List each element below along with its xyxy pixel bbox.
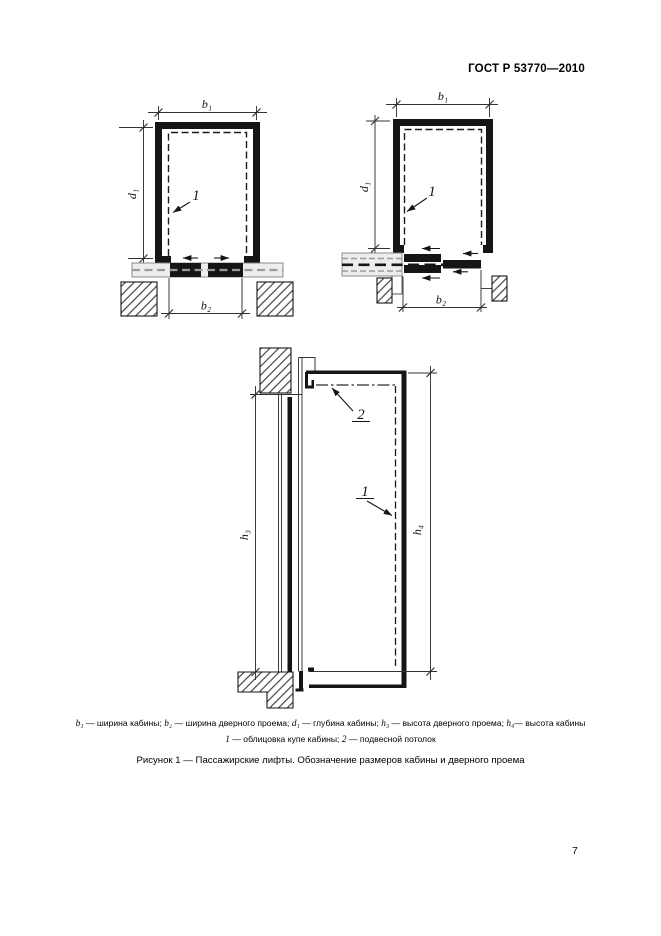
legend-desc: — ширина кабины; bbox=[84, 718, 165, 728]
lintel-hatch-block bbox=[260, 348, 291, 393]
door-panel-rear-top bbox=[404, 254, 441, 262]
cabin-wall-right bbox=[486, 119, 493, 253]
callout-leader bbox=[367, 501, 392, 516]
dimension-h3 bbox=[252, 386, 260, 680]
cabin-wall-left bbox=[393, 119, 400, 245]
cabin-wall-right bbox=[402, 371, 407, 688]
car-lining-dashed bbox=[169, 133, 247, 257]
legend-sym: h₃ bbox=[381, 719, 389, 729]
callout-label-1: 1 bbox=[192, 188, 199, 204]
legend-sym: d₁ bbox=[292, 719, 300, 729]
legend-desc: — облицовка купе кабины; bbox=[230, 734, 342, 744]
legend-desc: — подвесной потолок bbox=[347, 734, 436, 744]
figure-1-drawing: b₁ d₁ 1 bbox=[0, 0, 661, 936]
door-leaf-and-frame bbox=[279, 358, 304, 692]
dim-label-b2: b₂ bbox=[436, 293, 446, 307]
cabin-walls bbox=[393, 119, 493, 253]
door-panel bbox=[288, 397, 293, 672]
callout-leader bbox=[173, 202, 190, 213]
door-panel-front bbox=[443, 260, 481, 269]
figure-caption: Рисунок 1 — Пассажирские лифты. Обозначе… bbox=[0, 755, 661, 766]
legend-desc: — глубина кабины; bbox=[300, 718, 382, 728]
dimension-h4 bbox=[406, 366, 437, 680]
cabin-wall-right bbox=[253, 122, 260, 256]
legend-line-2: 1 — облицовка купе кабины; 2 — подвесной… bbox=[0, 732, 661, 748]
legend-line-1: b₁ — ширина кабины; b₂ — ширина дверного… bbox=[0, 716, 661, 732]
legend-desc: — высота кабины bbox=[514, 718, 585, 728]
door-sill-guide bbox=[299, 671, 303, 691]
shaft-wall-hatch-left bbox=[121, 282, 157, 316]
dim-label-d1: d₁ bbox=[125, 189, 139, 199]
dim-label-b1: b₁ bbox=[202, 97, 212, 111]
dim-label-b1: b₁ bbox=[438, 89, 448, 103]
cabin-walls bbox=[155, 122, 260, 263]
legend-desc: — ширина дверного проема; bbox=[172, 718, 292, 728]
document-page: ГОСТ Р 53770—2010 bbox=[0, 0, 661, 936]
page-number: 7 bbox=[572, 845, 578, 857]
legend-sym: b₁ bbox=[76, 719, 84, 729]
cabin-wall-top bbox=[155, 122, 260, 129]
dim-label-h3: h₃ bbox=[237, 530, 251, 540]
callout-leader bbox=[332, 388, 353, 411]
dim-label-d1: d₁ bbox=[357, 182, 371, 192]
cabin-wall-left bbox=[155, 122, 162, 256]
cabin-wall-left-foot bbox=[393, 245, 404, 253]
cabin-wall-top bbox=[393, 119, 493, 126]
vertical-section-view: h₃ h₄ 2 1 bbox=[237, 348, 437, 708]
threshold-hatch-block bbox=[238, 672, 293, 708]
shaft-wall-hatch-left bbox=[377, 278, 392, 303]
shaft-wall-hatch-right bbox=[257, 282, 293, 316]
legend-desc: — высота дверного проема; bbox=[389, 718, 506, 728]
dim-label-b2: b₂ bbox=[201, 299, 211, 313]
callout-label-2: 2 bbox=[357, 407, 364, 423]
dim-label-h4: h₄ bbox=[410, 525, 424, 535]
callout-label-1: 1 bbox=[428, 184, 435, 200]
cabin-wall-right-foot bbox=[483, 245, 493, 253]
callout-leader bbox=[407, 198, 427, 212]
figure-legend: b₁ — ширина кабины; b₂ — ширина дверного… bbox=[0, 716, 661, 747]
cabin-wall-right-foot bbox=[244, 256, 260, 263]
plan-view-centre-opening-doors: b₁ d₁ 1 bbox=[119, 97, 293, 319]
door-panel-rear-bottom bbox=[404, 265, 441, 273]
cabin-floor bbox=[308, 668, 407, 689]
landing-step-outline bbox=[392, 276, 402, 294]
car-lining-dashed bbox=[405, 130, 482, 246]
cabin-wall-left-foot bbox=[155, 256, 171, 263]
cabin-ceiling bbox=[305, 371, 407, 389]
callout-label-1: 1 bbox=[361, 484, 368, 500]
legend-sym: b₂ bbox=[164, 719, 172, 729]
shaft-wall-hatch-right bbox=[492, 276, 507, 301]
plan-view-side-opening-doors: b₁ d₁ 1 bbox=[342, 89, 507, 312]
